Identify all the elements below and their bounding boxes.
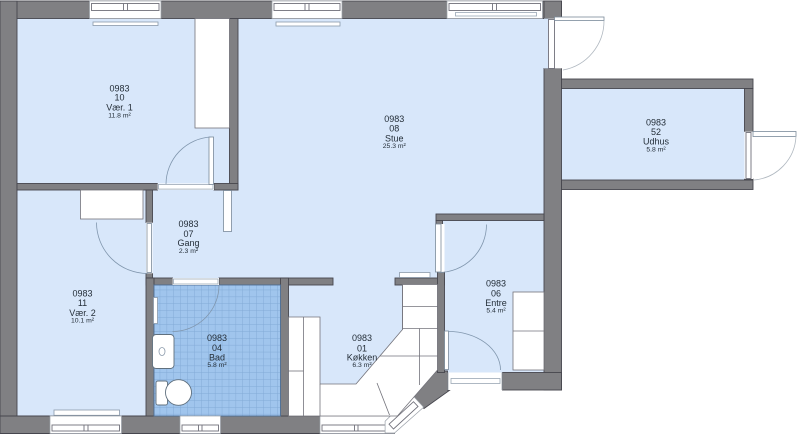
svg-text:Udhus: Udhus [643, 137, 670, 147]
svg-text:Bad: Bad [209, 353, 225, 363]
svg-text:6.3 m²: 6.3 m² [352, 362, 372, 369]
svg-text:0983: 0983 [178, 219, 198, 229]
svg-text:0983: 0983 [352, 333, 372, 343]
svg-text:0983: 0983 [646, 118, 666, 128]
svg-text:Vær. 1: Vær. 1 [106, 103, 133, 113]
svg-text:11: 11 [78, 298, 87, 308]
svg-text:04: 04 [212, 343, 222, 353]
svg-text:10.1 m²: 10.1 m² [71, 318, 95, 325]
svg-text:10: 10 [114, 93, 124, 103]
svg-text:0983: 0983 [486, 279, 506, 289]
svg-text:Entre: Entre [485, 298, 507, 308]
svg-text:5.8 m²: 5.8 m² [646, 147, 666, 154]
svg-text:52: 52 [651, 127, 661, 137]
svg-text:25.3 m²: 25.3 m² [383, 143, 407, 150]
svg-text:5.4 m²: 5.4 m² [486, 308, 506, 315]
svg-text:08: 08 [389, 124, 399, 134]
svg-text:0983: 0983 [72, 289, 92, 299]
svg-text:11.8 m²: 11.8 m² [108, 113, 131, 120]
svg-text:06: 06 [491, 289, 501, 299]
svg-text:Vær. 2: Vær. 2 [69, 308, 96, 318]
svg-text:2.3 m²: 2.3 m² [179, 248, 199, 255]
svg-text:0983: 0983 [207, 333, 227, 343]
svg-text:Køkken: Køkken [347, 353, 378, 363]
svg-text:0983: 0983 [384, 114, 404, 124]
svg-text:Gang: Gang [177, 238, 199, 248]
svg-text:Stue: Stue [385, 134, 404, 144]
svg-text:5.8 m²: 5.8 m² [207, 362, 227, 369]
